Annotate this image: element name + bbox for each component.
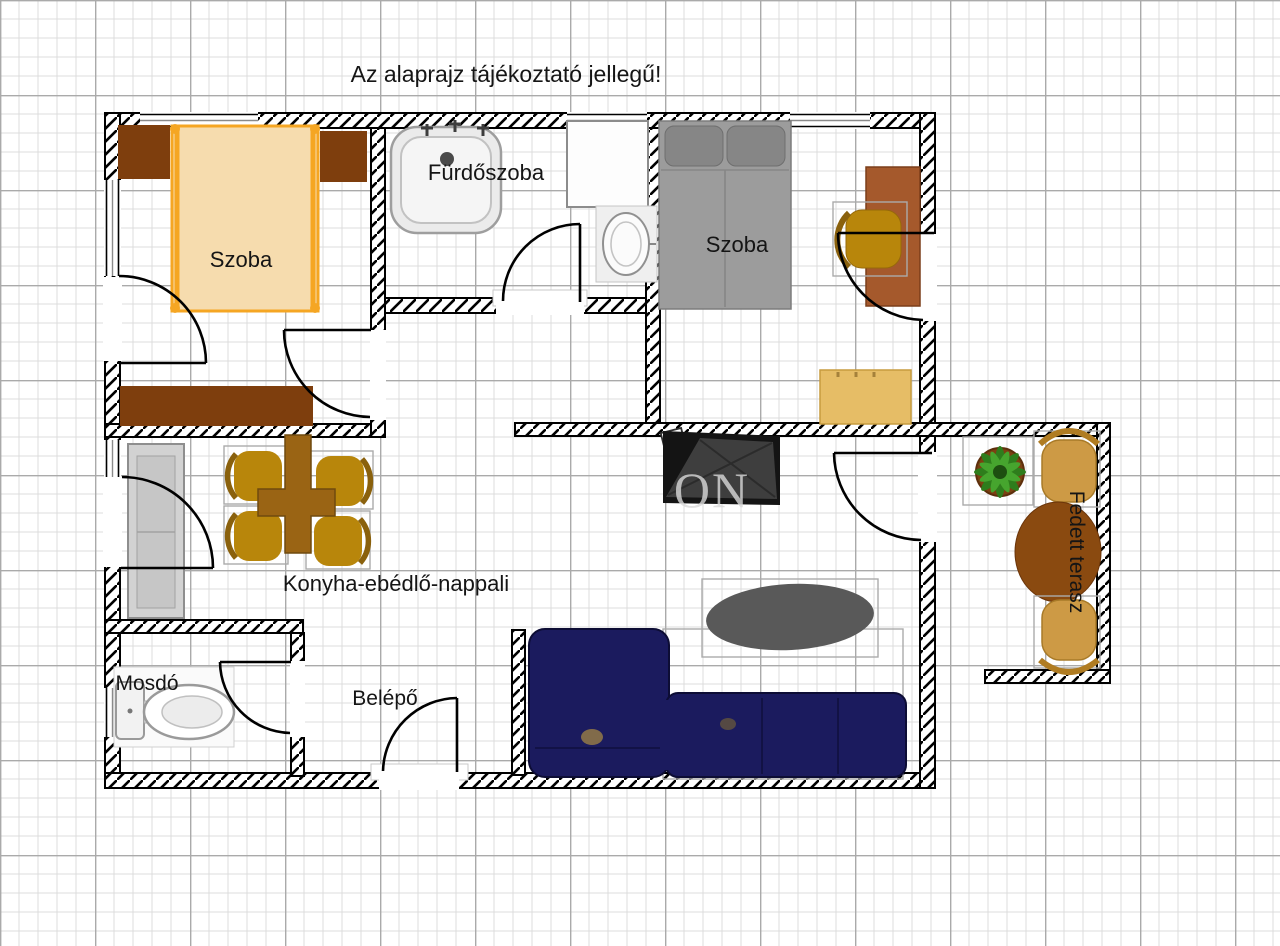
window-room1-west: [104, 180, 121, 276]
double-bed: [659, 121, 791, 309]
opening-kitchen-west: [103, 477, 122, 567]
wall-wc-north: [105, 620, 303, 633]
wc-label: Mosdó: [115, 672, 178, 695]
wardrobe: [320, 131, 367, 182]
single-bed: [170, 124, 320, 313]
opening-wc: [290, 661, 305, 737]
opening-room2-east: [918, 234, 937, 321]
floor-plan: Az alaprajz tájékoztató jellegű! Szoba F…: [0, 0, 1280, 946]
bathroom-label: Fürdőszoba: [428, 160, 545, 185]
dresser: [820, 370, 911, 424]
opening-bathroom: [496, 296, 584, 315]
window-kitchen-west: [104, 440, 121, 477]
opening-entry: [379, 771, 459, 790]
wall-entry-east: [512, 630, 525, 775]
wardrobe: [118, 125, 170, 179]
opening-room1-west: [103, 277, 122, 361]
fridge: [128, 444, 184, 618]
room1-label: Szoba: [210, 247, 273, 272]
sink: [596, 206, 657, 282]
page-title: Az alaprajz tájékoztató jellegű!: [351, 61, 662, 87]
wall-living-north: [515, 423, 1110, 436]
window-room2-north: [790, 112, 870, 129]
wall-exterior-east: [920, 113, 935, 788]
opening-living-terrace: [918, 452, 937, 542]
living-label: Konyha-ebédlő-nappali: [283, 571, 509, 596]
entry-label: Belépő: [352, 687, 417, 710]
room2-label: Szoba: [706, 232, 769, 257]
sideboard: [120, 386, 313, 426]
wall-terrace-south: [985, 670, 1110, 683]
terrace-label: Fedett terasz: [1065, 491, 1088, 614]
watermark: ON: [674, 462, 750, 518]
opening-room1-corridor: [370, 330, 386, 420]
potted-plant-icon: [974, 446, 1026, 498]
washing-machine: [567, 121, 648, 207]
